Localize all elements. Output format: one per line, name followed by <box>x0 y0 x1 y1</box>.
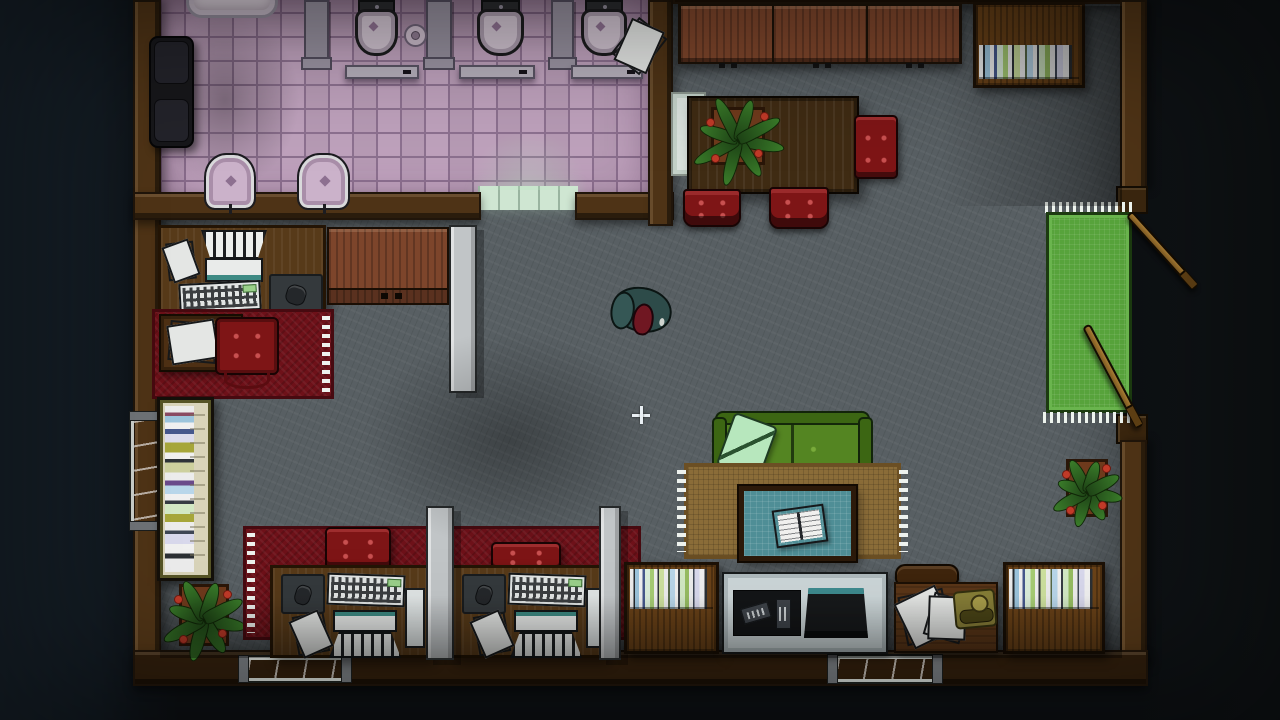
mouse-pad <box>269 274 323 314</box>
potted-plant-right <box>1052 446 1122 530</box>
window-left-wall <box>131 418 160 524</box>
bathtub <box>186 0 278 18</box>
red-flower <box>1062 470 1071 479</box>
loose-papers <box>165 241 197 282</box>
bookshelf-left-vertical <box>157 397 214 581</box>
typewriter <box>201 230 267 282</box>
golf-club-1 <box>1126 210 1200 290</box>
floor-shade-center <box>360 330 660 550</box>
game-viewport[interactable] <box>0 0 1280 720</box>
cabinet-door <box>774 6 865 62</box>
open-magazine <box>772 504 829 549</box>
wall-right-upper <box>1120 0 1147 190</box>
dining-table-plant <box>693 94 783 178</box>
bathroom-door-glow <box>468 130 588 190</box>
red-flower <box>706 118 715 127</box>
stall-divider-2 <box>426 0 452 64</box>
toilet-bowl <box>477 9 524 56</box>
stall-door-1 <box>345 65 419 79</box>
dresser <box>327 227 449 305</box>
office-desk-left <box>158 225 326 317</box>
wall-right-lower <box>1120 440 1147 668</box>
coffee-table <box>739 486 856 561</box>
putting-mat-fringe-bottom <box>1043 412 1135 423</box>
red-flower <box>1098 501 1107 510</box>
office-chair-red <box>215 317 279 375</box>
window-bottom-right <box>835 656 935 682</box>
red-flower <box>711 154 720 163</box>
loose-papers <box>167 320 218 364</box>
toilet-1 <box>355 0 398 56</box>
black-armchair <box>149 36 194 148</box>
crosshair-cursor[interactable] <box>632 406 650 424</box>
stall-divider-3 <box>551 0 574 64</box>
bidet-1 <box>206 155 254 208</box>
typewriter-body <box>205 258 263 282</box>
dining-shade-right <box>940 6 1122 206</box>
toilet-bowl <box>355 9 398 56</box>
cabinet-door <box>681 6 772 62</box>
red-flower <box>1102 464 1111 473</box>
floor-shade-bottom <box>160 596 1122 658</box>
dining-chair-south-2 <box>769 187 829 229</box>
bidet-2 <box>299 155 348 208</box>
typewriter-paper-fan <box>201 230 267 259</box>
red-flower <box>754 149 763 158</box>
dining-chair-south-1 <box>683 189 741 227</box>
computer-mouse <box>283 282 308 307</box>
window-bottom-left <box>246 657 344 681</box>
wall-cabinets <box>678 4 962 64</box>
stall-divider-1 <box>304 0 329 64</box>
stall-door-2 <box>459 65 535 79</box>
dining-chair-east <box>854 115 898 179</box>
toilet-2 <box>477 0 524 56</box>
toilet-paper-roll <box>404 24 427 47</box>
red-flower <box>1066 506 1075 515</box>
